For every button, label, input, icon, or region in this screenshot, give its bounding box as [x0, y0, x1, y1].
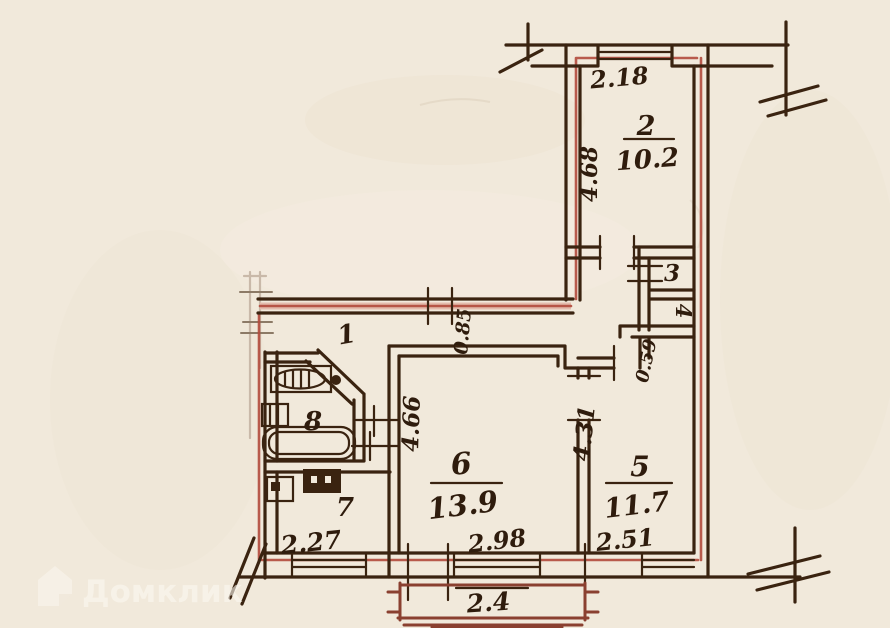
- floor-plan-drawing: 2.18 2 10.2 4.68 3 4 0.59 1 0.85 8 7 2.2…: [0, 0, 890, 628]
- watermark: Домклик: [38, 566, 243, 610]
- dim-pantry-door: 0.59: [632, 337, 662, 385]
- sink-tap: [331, 375, 341, 385]
- dim-room6-depth: 4.66: [397, 395, 426, 452]
- dim-room2-depth: 4.68: [576, 146, 603, 202]
- room5-area: 11.7: [602, 486, 671, 525]
- room7-number: 7: [336, 493, 354, 523]
- room2-area: 10.2: [615, 143, 680, 177]
- dim-kitchen-width: 2.27: [278, 525, 343, 560]
- domclick-house-logo-icon: [38, 566, 72, 606]
- dim-room5-depth: 4.31: [568, 404, 601, 463]
- room6-area: 13.9: [426, 484, 500, 526]
- room5-number: 5: [630, 450, 649, 483]
- dim-hall-clear: 0.85: [450, 307, 476, 355]
- room2-number: 2: [636, 111, 656, 142]
- room4-number: 4: [671, 304, 696, 319]
- stove: [303, 469, 341, 493]
- floor-plan-scan: 2.18 2 10.2 4.68 3 4 0.59 1 0.85 8 7 2.2…: [0, 0, 890, 628]
- dim-room2-width: 2.18: [588, 61, 650, 95]
- room6-number: 6: [449, 446, 473, 483]
- hall-number: 1: [335, 319, 358, 352]
- watermark-label: Домклик: [82, 574, 243, 610]
- dim-balcony-width: 2.4: [465, 587, 511, 619]
- dim-room5-width: 2.51: [594, 522, 656, 557]
- room8-number: 8: [303, 407, 322, 437]
- room3-number: 3: [664, 260, 680, 287]
